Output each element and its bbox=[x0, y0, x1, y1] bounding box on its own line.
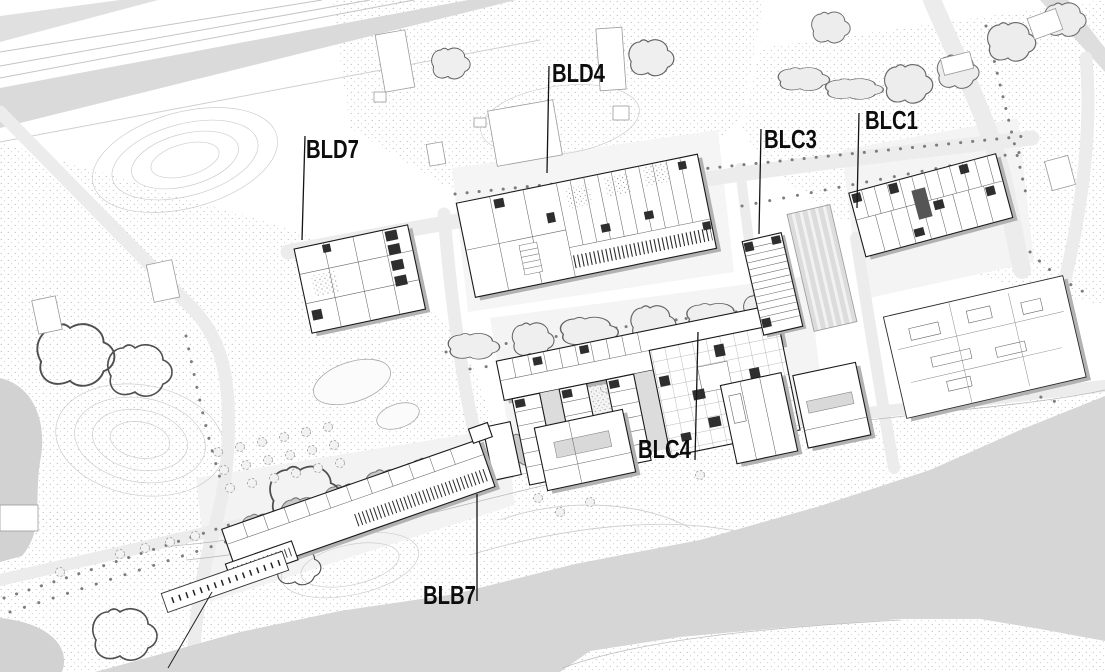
site-plan-drawing bbox=[0, 0, 1105, 672]
label-blc3: BLC3 bbox=[764, 126, 817, 152]
label-blb7: BLB7 bbox=[423, 582, 476, 608]
label-blc1: BLC1 bbox=[865, 107, 918, 133]
label-blc4: BLC4 bbox=[638, 436, 691, 462]
label-bld4: BLD4 bbox=[552, 60, 605, 86]
site-plan: BLD7 BLD4 BLC3 BLC1 BLC4 BLB7 bbox=[0, 0, 1105, 672]
label-bld7: BLD7 bbox=[306, 136, 359, 162]
